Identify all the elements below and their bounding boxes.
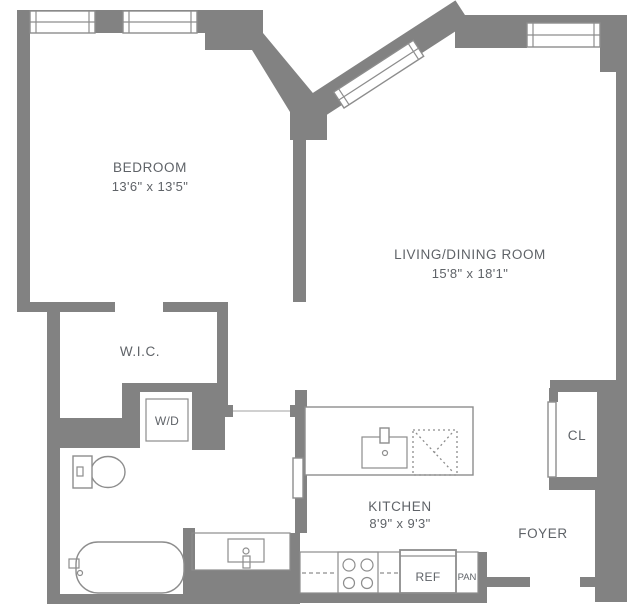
kitchen-island bbox=[305, 407, 473, 475]
refrigerator-label: REF bbox=[416, 570, 441, 584]
closet-label: CL bbox=[568, 428, 586, 443]
walls bbox=[17, 0, 627, 604]
floor-plan-svg: BEDROOM 13'6" x 13'5" LIVING/DINING ROOM… bbox=[0, 0, 644, 609]
living-window-top bbox=[527, 23, 600, 47]
kitchen-dimensions: 8'9" x 9'3" bbox=[369, 516, 430, 531]
bathtub bbox=[69, 542, 184, 593]
living-dining-dimensions: 15'8" x 18'1" bbox=[432, 266, 509, 281]
bedroom-window-left bbox=[30, 11, 95, 33]
wic-label: W.I.C. bbox=[120, 344, 160, 359]
kitchen-label: KITCHEN bbox=[368, 499, 431, 514]
bedroom-label: BEDROOM bbox=[113, 160, 187, 175]
toilet bbox=[73, 456, 125, 488]
washer-dryer-label: W/D bbox=[155, 414, 179, 428]
kitchen-counter bbox=[300, 550, 478, 593]
closet-door-panel bbox=[548, 402, 556, 477]
living-dining-label: LIVING/DINING ROOM bbox=[394, 247, 546, 262]
bedroom-dimensions: 13'6" x 13'5" bbox=[112, 179, 189, 194]
bedroom-window-right bbox=[123, 11, 197, 33]
floor-plan: BEDROOM 13'6" x 13'5" LIVING/DINING ROOM… bbox=[0, 0, 644, 609]
bathroom-pocket-door bbox=[293, 458, 303, 498]
stove bbox=[338, 552, 378, 593]
bathroom-vanity bbox=[192, 533, 290, 570]
pantry-label: PAN bbox=[458, 572, 477, 583]
foyer-label: FOYER bbox=[518, 526, 568, 541]
labels: BEDROOM 13'6" x 13'5" LIVING/DINING ROOM… bbox=[112, 160, 586, 584]
